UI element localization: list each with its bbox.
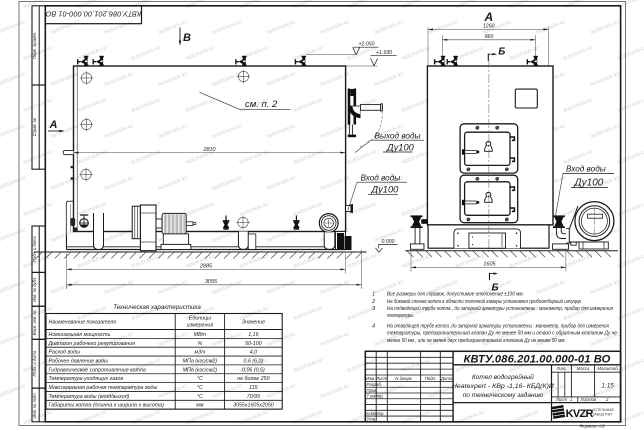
svg-text:KVZR: KVZR — [566, 408, 594, 420]
svg-text:Масса: Масса — [577, 366, 590, 371]
svg-text:На подводящей трубе котла ,: На подводящей трубе котла , до запорной … — [387, 305, 613, 312]
svg-text:Котел водогрейный: Котел водогрейный — [472, 373, 534, 381]
svg-text:Перв. примен.: Перв. примен. — [32, 32, 37, 59]
svg-text:Ду100: Ду100 — [574, 178, 604, 189]
svg-text:КВТУ.086.201.00.000-01 ВО: КВТУ.086.201.00.000-01 ВО — [45, 10, 141, 19]
svg-text:°С: °С — [197, 376, 203, 382]
svg-text:измерения: измерения — [187, 322, 214, 328]
svg-text:Максимальная рабочая температу: Максимальная рабочая температура воды — [49, 385, 158, 391]
svg-text:Б: Б — [498, 46, 505, 57]
svg-text:Справ. №: Справ. № — [32, 117, 37, 136]
svg-text:Листов: Листов — [580, 397, 597, 402]
svg-text:°С: °С — [197, 385, 203, 391]
svg-text:+2.050: +2.050 — [358, 42, 374, 48]
svg-text:Техническая характеристика: Техническая характеристика — [113, 304, 201, 311]
svg-text:Подп. и дата: Подп. и дата — [32, 350, 37, 376]
svg-text:1: 1 — [372, 292, 375, 298]
svg-text:1605: 1605 — [483, 262, 496, 268]
svg-text:Единицы: Единицы — [189, 316, 211, 322]
svg-text:МПа (кгс/см2): МПа (кгс/см2) — [183, 358, 218, 364]
svg-text:Ду100: Ду100 — [371, 185, 400, 195]
svg-text:Разраб.: Разраб. — [367, 382, 383, 387]
svg-text:температуры.: температуры. — [387, 313, 414, 319]
svg-text:А: А — [49, 119, 58, 131]
svg-text:°С: °С — [197, 394, 203, 400]
svg-text:Т.контр.: Т.контр. — [367, 394, 384, 399]
svg-text:Н.контр.: Н.контр. — [367, 411, 385, 416]
svg-text:менее 50 мм , или не менее дв: менее 50 мм , или не менее двух предохра… — [387, 338, 567, 344]
svg-text:2885: 2885 — [199, 263, 213, 269]
svg-text:Утв.: Утв. — [367, 417, 377, 422]
svg-text:50-100: 50-100 — [245, 341, 262, 347]
svg-text:Лит.: Лит. — [555, 366, 566, 371]
svg-text:Формат А3: Формат А3 — [579, 424, 605, 429]
svg-text:70/95: 70/95 — [247, 394, 260, 400]
svg-text:На боковой стенке котла в обла: На боковой стенке котла в области топочн… — [387, 298, 581, 305]
svg-text:Расход воды: Расход воды — [49, 350, 80, 356]
svg-text:Номинальная мощность: Номинальная мощность — [49, 332, 111, 338]
svg-text:Heatexpert - КВр -1,16- КБД(К): Heatexpert - КВр -1,16- КБД(К)И — [452, 383, 554, 390]
svg-text:мм: мм — [196, 403, 204, 409]
svg-text:Температура воды (вход/выход): Температура воды (вход/выход) — [49, 394, 130, 400]
svg-text:МПа (кгс/см2): МПа (кгс/см2) — [183, 367, 218, 373]
svg-text:по техническому заданию: по техническому заданию — [463, 391, 543, 399]
svg-text:2810: 2810 — [203, 147, 216, 153]
svg-text:Значение: Значение — [242, 320, 265, 326]
svg-text:4: 4 — [372, 323, 375, 329]
svg-text:м3/ч: м3/ч — [195, 350, 206, 356]
svg-text:0,06 (0,6): 0,06 (0,6) — [242, 367, 265, 373]
svg-text:1,16: 1,16 — [248, 332, 258, 338]
svg-text:0.000: 0.000 — [382, 239, 395, 245]
svg-text:КВТУ.086.201.00.000-01 ВО: КВТУ.086.201.00.000-01 ВО — [464, 353, 611, 365]
svg-text:не более 250: не более 250 — [237, 376, 269, 382]
svg-text:Ду100: Ду100 — [386, 143, 415, 153]
svg-text:Изм.: Изм. — [366, 376, 375, 381]
svg-text:температуры, предохранительный: температуры, предохранительный клапан Ду… — [387, 330, 617, 337]
svg-text:Лист: Лист — [375, 376, 387, 381]
svg-text:В: В — [183, 32, 191, 44]
svg-text:А: А — [484, 10, 494, 24]
svg-text:1260: 1260 — [483, 24, 495, 30]
svg-text:Инв. № дубл.: Инв. № дубл. — [32, 277, 37, 302]
svg-text:МВт: МВт — [194, 332, 207, 338]
svg-text:см. п. 2: см. п. 2 — [245, 99, 278, 110]
svg-text:Подп.: Подп. — [425, 376, 436, 381]
svg-text:Гидравлическое сопротивление к: Гидравлическое сопротивление котла — [49, 367, 146, 373]
svg-text:Пров.: Пров. — [367, 388, 378, 393]
svg-text:Рабочее давление воды: Рабочее давление воды — [49, 358, 108, 364]
svg-text:Вход воды: Вход воды — [566, 165, 606, 174]
svg-text:Температура уходящих газов: Температура уходящих газов — [49, 376, 124, 382]
svg-text:1:15: 1:15 — [601, 383, 614, 390]
svg-text:3055х1605х2050: 3055х1605х2050 — [233, 403, 274, 409]
svg-text:Габариты котла (длинна х ширин: Габариты котла (длинна х ширина х высота… — [49, 403, 165, 409]
svg-text:960: 960 — [485, 34, 494, 40]
svg-text:Диапазон рабочего регулировани: Диапазон рабочего регулирования — [48, 341, 136, 347]
svg-text:Лист: Лист — [555, 397, 567, 402]
svg-text:Дата: Дата — [440, 376, 453, 381]
svg-text:3055: 3055 — [205, 279, 218, 285]
svg-text:Вход воды: Вход воды — [361, 173, 401, 182]
svg-text:%: % — [198, 341, 203, 347]
svg-text:+1.930: +1.930 — [376, 50, 392, 56]
svg-text:115: 115 — [249, 385, 257, 391]
svg-text:Инв. № подл.: Инв. № подл. — [32, 392, 37, 417]
svg-text:Выход воды: Выход воды — [375, 131, 421, 140]
svg-text:0,6 (6,0): 0,6 (6,0) — [244, 358, 264, 364]
svg-text:Взам. инв. №: Взам. инв. № — [32, 310, 37, 336]
svg-text:N докум.: N докум. — [395, 376, 412, 381]
svg-text:КОТЕЛЬНЫЙ: КОТЕЛЬНЫЙ — [593, 408, 615, 412]
svg-text:Все размеры для справок, допус: Все размеры для справок, допустимое откл… — [387, 292, 524, 298]
svg-text:Масштаб: Масштаб — [598, 366, 619, 371]
svg-text:ЗАВОД РЭП: ЗАВОД РЭП — [593, 412, 613, 416]
svg-text:Наименование показателя: Наименование показателя — [49, 320, 117, 326]
svg-text:На отводящей трубе котла ,до з: На отводящей трубе котла ,до запорной ар… — [387, 322, 609, 329]
svg-text:4,0: 4,0 — [250, 350, 257, 356]
